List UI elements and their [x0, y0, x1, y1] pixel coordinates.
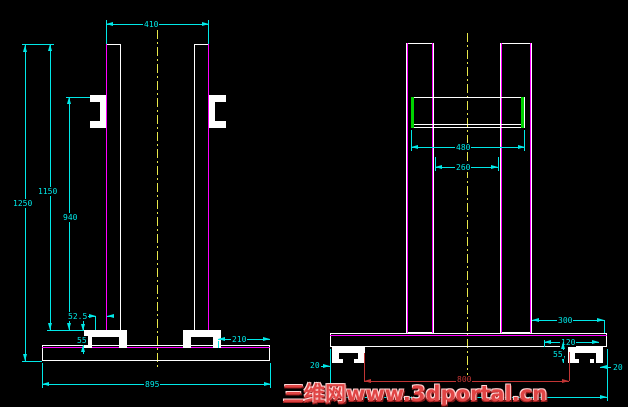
front-base-top-line [42, 347, 270, 348]
front-column-right [194, 44, 209, 332]
dim-side-left-overhang: 20 [309, 361, 321, 370]
side-foot-left [332, 347, 365, 363]
watermark-text: 三维网www.3dportal.cn [283, 382, 547, 406]
dim-side-right-overhang: 20 [612, 363, 624, 372]
front-foot-left [84, 330, 127, 348]
cross-beam-inner-line [412, 124, 524, 125]
side-column-right [500, 43, 532, 333]
dim-front-upper-height: 1150 [37, 187, 58, 196]
front-column-left-face-line [106, 44, 107, 332]
front-column-right-face-line [208, 44, 209, 332]
dim-front-foot-height: 55 [76, 336, 88, 345]
dim-side-beam-width: 480 [455, 143, 471, 152]
cross-beam-left-edge [411, 97, 414, 128]
front-bracket-left [90, 95, 106, 128]
cad-drawing-canvas: 410 1250 1150 940 52.5 55 [0, 0, 628, 407]
dim-front-base-width: 895 [144, 380, 160, 389]
cross-beam-right-edge [521, 97, 524, 128]
dim-front-bracket-height: 940 [62, 213, 78, 222]
dim-front-base-right-margin: 210 [231, 335, 247, 344]
front-bracket-right [209, 95, 226, 128]
dim-side-column-gap: 260 [455, 163, 471, 172]
front-foot-right [183, 330, 221, 348]
side-foot-right [568, 347, 603, 363]
front-column-left [106, 44, 121, 332]
side-column-left [406, 43, 434, 333]
dim-front-top-width: 410 [143, 20, 159, 29]
dim-front-overall-height: 1250 [12, 199, 33, 208]
side-base-top-line [330, 335, 607, 336]
dim-side-foot-height: 55 [552, 350, 564, 359]
dim-side-base-right-margin: 300 [557, 316, 573, 325]
front-centerline [157, 30, 158, 370]
dim-front-bracket-offset: 52.5 [67, 312, 88, 321]
